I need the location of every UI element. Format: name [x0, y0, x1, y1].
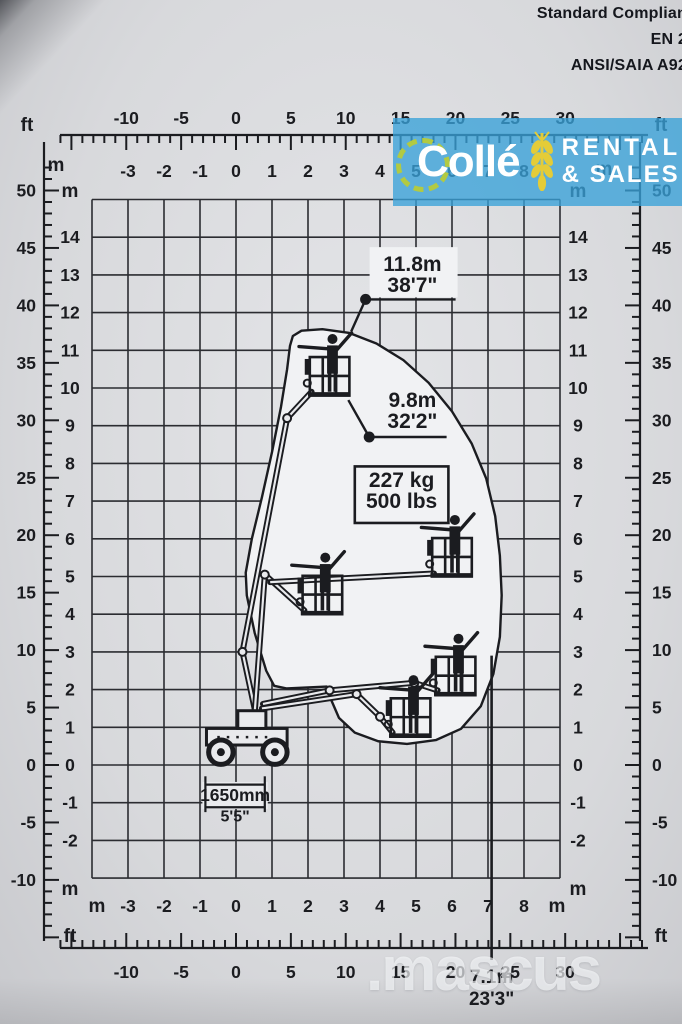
logo-tagline-rental: RENTAL	[562, 135, 682, 162]
top-ft-label: -10	[114, 108, 140, 128]
right-m-label: 4	[573, 604, 583, 624]
bottom-m-label: 3	[339, 896, 349, 916]
right-m-label: 8	[573, 453, 583, 473]
left-ft-label: 30	[17, 410, 37, 430]
right-ft-label: -10	[652, 870, 678, 890]
right-m-label: 0	[573, 755, 583, 775]
leader-dot	[364, 432, 375, 443]
chassis-width-callout: 1650mm5'5"	[200, 776, 270, 825]
bottom-m-label: 0	[231, 896, 241, 916]
max-working-height-callout: 11.8m38'7"	[351, 247, 457, 331]
left-ft-label: 20	[17, 525, 37, 545]
right-ft-label: 10	[652, 640, 672, 660]
left-m-label: 14	[60, 227, 80, 247]
m-axis-unit: m	[62, 181, 79, 202]
person-head	[408, 675, 418, 685]
person-arm	[380, 688, 410, 690]
bottom-m-label: 1	[267, 896, 277, 916]
boom-joint	[376, 713, 384, 721]
bottom-m-label: -2	[156, 896, 172, 916]
bottom-ft-label: -10	[114, 962, 140, 982]
person-leg	[456, 553, 460, 573]
left-m-label: -2	[62, 830, 78, 850]
right-ft-label: 35	[652, 353, 672, 373]
person-leg	[454, 672, 458, 692]
person-arm	[425, 646, 455, 648]
bottom-ft-label: 5	[286, 962, 296, 982]
left-m-label: 6	[65, 529, 75, 549]
right-m-label: 5	[573, 567, 583, 587]
left-ft-label: 15	[17, 583, 37, 603]
boom-joint	[283, 414, 291, 422]
left-m-label: 8	[65, 453, 75, 473]
left-m-label: 4	[65, 604, 75, 624]
wheel-hub	[271, 748, 279, 756]
left-m-label: 5	[65, 567, 75, 587]
right-m-label: 6	[573, 529, 583, 549]
logo-brand-text: Collé	[417, 140, 520, 184]
top-m-unit: m	[48, 155, 65, 176]
logo-tagline-sales: & SALES	[562, 162, 682, 189]
left-ft-label: 0	[26, 755, 36, 775]
right-m-label: -2	[570, 830, 586, 850]
compliance-line-en: EN 2	[537, 27, 682, 53]
right-m-label: 10	[568, 378, 588, 398]
bottom-m-label: 2	[303, 896, 313, 916]
chassis-width-ft: 5'5"	[221, 809, 250, 826]
left-m-label: 2	[65, 680, 75, 700]
left-ft-label: 10	[17, 640, 37, 660]
person-leg	[450, 553, 454, 573]
capacity-lbs: 500 lbs	[366, 490, 437, 513]
max-platform-height-callout-imperial: 32'2"	[387, 410, 437, 433]
max-working-height-callout-imperial: 38'7"	[387, 274, 437, 297]
left-ft-label: -10	[11, 870, 37, 890]
person-leg	[460, 672, 464, 692]
left-ft-label: -5	[20, 812, 36, 832]
top-m-label: 4	[375, 161, 385, 181]
left-m-label: 1	[65, 717, 75, 737]
chassis-width-mm: 1650mm	[200, 785, 270, 805]
boom-joint	[353, 690, 361, 698]
bottom-m-label: -1	[192, 896, 208, 916]
right-m-label: 14	[568, 227, 588, 247]
bottom-m-unit: m	[89, 896, 106, 917]
bottom-ft-label: 0	[231, 962, 241, 982]
person-arm	[421, 527, 451, 529]
right-ft-label: 30	[652, 410, 672, 430]
left-m-label: -1	[62, 793, 78, 813]
left-m-label: 11	[61, 340, 80, 360]
right-m-label: 13	[568, 265, 588, 285]
load-chart-photo: { "header": { "compliance_lines": ["Stan…	[0, 0, 682, 1024]
top-m-label: -3	[120, 161, 136, 181]
left-ft-label: 35	[17, 353, 37, 373]
person-leg	[326, 591, 330, 611]
right-ft-label: 5	[652, 698, 662, 718]
max-working-height-callout-metric: 11.8m	[383, 253, 441, 276]
wheel-hub	[217, 748, 225, 756]
top-ft-unit: ft	[21, 115, 34, 136]
right-ft-label: 0	[652, 755, 662, 775]
person-head	[320, 553, 330, 563]
left-ft-label: 50	[17, 181, 37, 201]
boom-joint	[238, 648, 246, 656]
compliance-text-block: Standard Complian EN 2 ANSI/SAIA A92	[537, 1, 682, 79]
person-head	[453, 634, 463, 644]
left-m-label: 3	[65, 642, 75, 662]
top-m-label: -2	[156, 161, 172, 181]
person-head	[450, 515, 460, 525]
top-m-label: 0	[231, 161, 241, 181]
bottom-m-label: 8	[519, 896, 529, 916]
left-m-label: 9	[65, 416, 75, 436]
m-axis-unit: m	[62, 879, 79, 900]
compliance-line-standard: Standard Complian	[537, 1, 682, 27]
boom-joint	[326, 686, 334, 694]
leader-dot	[360, 294, 371, 305]
wheat-icon	[529, 131, 555, 193]
left-m-label: 0	[65, 755, 75, 775]
right-m-label: 7	[573, 491, 583, 511]
right-m-label: 2	[573, 680, 583, 700]
right-ft-label: 15	[652, 583, 672, 603]
mascus-watermark: .mascus	[366, 934, 600, 1005]
capacity-kg: 227 kg	[369, 469, 434, 492]
top-ft-label: -5	[173, 108, 189, 128]
right-m-label: 11	[569, 340, 588, 360]
bottom-m-label: 5	[411, 896, 421, 916]
right-ft-label: -5	[652, 812, 668, 832]
bottom-ft-unit: ft	[64, 926, 77, 947]
colle-rental-sales-logo: Collé RENTAL & SALES	[393, 118, 682, 206]
boom-joint	[261, 571, 269, 579]
top-m-label: -1	[192, 161, 208, 181]
top-ft-label: 5	[286, 108, 296, 128]
left-ft-label: 45	[17, 238, 37, 258]
max-platform-height-callout-metric: 9.8m	[388, 389, 436, 412]
right-m-label: -1	[570, 793, 586, 813]
right-m-label: 1	[573, 717, 583, 737]
bottom-ft-label: 10	[336, 962, 356, 982]
person-arm	[299, 347, 329, 349]
bottom-ft-unit: ft	[655, 926, 668, 947]
top-m-label: 2	[303, 161, 313, 181]
top-m-label: 3	[339, 161, 349, 181]
compliance-line-ansi: ANSI/SAIA A92	[537, 53, 682, 79]
bottom-ft-label: -5	[173, 962, 189, 982]
left-m-label: 10	[60, 378, 80, 398]
bottom-m-label: 4	[375, 896, 385, 916]
chassis-turret	[238, 711, 266, 729]
top-ft-label: 0	[231, 108, 241, 128]
person-leg	[334, 372, 338, 392]
left-m-label: 13	[60, 265, 80, 285]
left-m-label: 7	[65, 491, 75, 511]
right-m-label: 3	[573, 642, 583, 662]
right-ft-label: 40	[652, 295, 672, 315]
left-ft-label: 5	[26, 698, 36, 718]
person-leg	[415, 713, 419, 733]
left-ft-label: 40	[17, 295, 37, 315]
right-m-label: 9	[573, 416, 583, 436]
bottom-m-label: -3	[120, 896, 136, 916]
right-m-label: 12	[568, 303, 588, 323]
bottom-m-label: 6	[447, 896, 457, 916]
right-ft-label: 25	[652, 468, 672, 488]
top-m-label: 1	[267, 161, 277, 181]
person-arm	[292, 565, 322, 567]
logo-tagline: RENTAL & SALES	[562, 135, 682, 189]
person-head	[327, 334, 337, 344]
capacity-callout: 227 kg500 lbs	[355, 466, 449, 523]
bottom-m-unit: m	[549, 896, 566, 917]
left-ft-label: 25	[17, 468, 37, 488]
left-m-label: 12	[60, 303, 80, 323]
person-leg	[321, 591, 325, 611]
m-axis-unit: m	[570, 879, 587, 900]
person-leg	[328, 372, 332, 392]
right-ft-label: 20	[652, 525, 672, 545]
right-ft-label: 45	[652, 238, 672, 258]
top-ft-label: 10	[336, 108, 356, 128]
person-leg	[409, 713, 413, 733]
